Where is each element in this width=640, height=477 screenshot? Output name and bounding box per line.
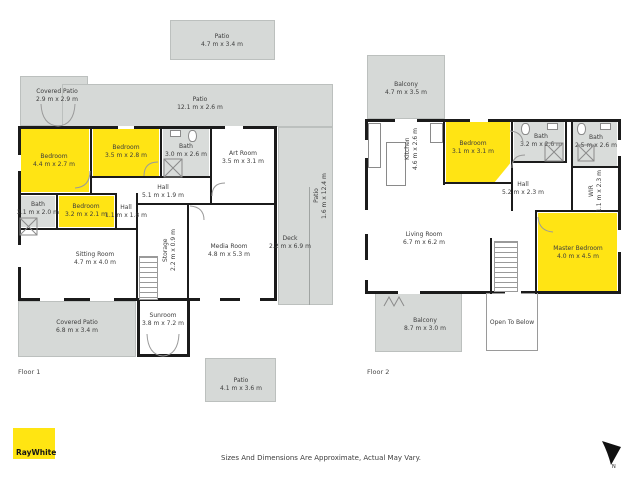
room-name: Patio <box>313 173 321 219</box>
room-label-bedroom3: Bedroom 3.2 m x 2.1 m <box>65 203 107 219</box>
room-name: Covered Patio <box>56 319 98 327</box>
wall-segment <box>511 161 567 163</box>
room-dims: 2.1 m x 2.0 m <box>17 209 59 217</box>
kitchen-island <box>386 142 406 186</box>
window-opening <box>18 245 21 267</box>
raywhite-logo: RayWhite <box>13 428 55 459</box>
room-name: Hall <box>142 184 184 192</box>
window-opening <box>365 260 368 280</box>
window-opening <box>398 291 420 294</box>
room-name: Bedroom <box>105 144 147 152</box>
room-label-bedroom-f2: Bedroom 3.1 m x 3.1 m <box>452 140 494 156</box>
room-dims: 1.6 m x 12.4 m <box>321 173 329 219</box>
room-label-living-room: Living Room 6.7 m x 6.2 m <box>403 231 445 247</box>
room-label-hall-f2: Hall 5.2 m x 2.3 m <box>502 181 544 197</box>
room-dims: 12.1 m x 2.6 m <box>177 104 223 112</box>
window-opening <box>18 155 21 171</box>
room-dims: 6.7 m x 6.2 m <box>403 239 445 247</box>
room-label-patio-top: Patio 4.7 m x 3.4 m <box>201 33 243 49</box>
room-dims: 2.5 m x 2.6 m <box>575 142 617 150</box>
wall-segment <box>136 203 276 205</box>
room-label-wir: WIR 1.1 m x 2.3 m <box>588 170 604 212</box>
window-opening <box>365 210 368 234</box>
room-name: Balcony <box>404 317 446 325</box>
floor1-label: Floor 1 <box>18 368 40 376</box>
room-label-balcony-bottom: Balcony 8.7 m x 3.0 m <box>404 317 446 333</box>
room-dims: 4.8 m x 5.3 m <box>208 251 250 259</box>
room-label-sitting-room: Sitting Room 4.7 m x 4.0 m <box>74 251 116 267</box>
room-dims: 3.0 m x 2.6 m <box>165 151 207 159</box>
room-name: Kitchen <box>404 128 412 170</box>
wall-segment <box>511 119 513 211</box>
room-label-patio-long: Patio 12.1 m x 2.6 m <box>177 96 223 112</box>
window-opening <box>395 119 417 122</box>
room-label-bath2: Bath 2.1 m x 2.0 m <box>17 201 59 217</box>
room-dims: 3.8 m x 7.2 m <box>142 320 184 328</box>
window-opening <box>240 298 260 301</box>
room-dims: 4.6 m x 2.6 m <box>412 128 420 170</box>
room-dims: 2.2 m x 6.9 m <box>269 243 311 251</box>
room-dims: 2.9 m x 2.9 m <box>36 96 78 104</box>
kitchen-appliance <box>430 123 443 143</box>
compass-north-label: N <box>612 464 616 470</box>
wall-segment <box>490 238 492 294</box>
room-dims: 4.7 m x 4.0 m <box>74 259 116 267</box>
room-name: Deck <box>269 235 311 243</box>
sink-fixture <box>170 130 181 137</box>
room-name: Media Room <box>208 243 250 251</box>
window-opening <box>618 140 621 156</box>
room-dims: 3.2 m x 2.6 m <box>520 141 562 149</box>
compass-arrow-icon <box>602 441 621 465</box>
wall-segment <box>187 203 189 301</box>
sink-fixture <box>547 123 558 130</box>
window-opening <box>90 298 114 301</box>
room-name: Bedroom <box>452 140 494 148</box>
room-name: Sitting Room <box>74 251 116 259</box>
wall-segment <box>90 126 92 195</box>
floorplan-canvas: Patio 4.7 m x 3.4 m Covered Patio 2.9 m … <box>0 0 640 477</box>
room-dims: 4.4 m x 2.7 m <box>33 161 75 169</box>
room-dims: 3.2 m x 2.1 m <box>65 211 107 219</box>
window-opening <box>618 230 621 252</box>
room-name: Storage <box>162 229 170 271</box>
room-dims: 5.1 m x 1.9 m <box>142 192 184 200</box>
room-name: Bedroom <box>33 153 75 161</box>
room-label-covered-patio-bottom: Covered Patio 6.8 m x 3.4 m <box>56 319 98 335</box>
room-label-balcony-top: Balcony 4.7 m x 3.5 m <box>385 81 427 97</box>
room-dims: 3.1 m x 3.1 m <box>452 148 494 156</box>
raywhite-logo-text: RayWhite <box>16 448 56 457</box>
room-name: Patio <box>220 377 262 385</box>
wall-segment <box>535 210 537 294</box>
room-name: Open To Below <box>490 319 534 327</box>
room-label-bath1: Bath 3.0 m x 2.6 m <box>165 143 207 159</box>
room-label-sunroom: Sunroom 3.8 m x 7.2 m <box>142 312 184 328</box>
disclaimer-text: Sizes And Dimensions Are Approximate, Ac… <box>221 454 421 462</box>
room-dims: 3.5 m x 3.1 m <box>222 158 264 166</box>
wall-segment <box>91 176 211 178</box>
wall-segment <box>565 119 567 163</box>
room-name: Bath <box>575 134 617 142</box>
room-dims: 1.1 m x 2.3 m <box>596 170 604 212</box>
kitchen-counter <box>368 123 381 168</box>
room-dims: 4.7 m x 3.5 m <box>385 89 427 97</box>
sink-fixture <box>600 123 611 130</box>
room-label-bedroom1: Bedroom 4.4 m x 2.7 m <box>33 153 75 169</box>
room-label-deck: Deck 2.2 m x 6.9 m <box>269 235 311 251</box>
wall-segment <box>18 193 117 195</box>
room-name: Bath <box>165 143 207 151</box>
wall-segment <box>443 182 511 184</box>
staircase-floor1 <box>139 256 158 300</box>
room-name: Living Room <box>403 231 445 239</box>
wall-segment <box>160 126 162 178</box>
room-label-hall-f1: Hall 5.1 m x 1.9 m <box>142 184 184 200</box>
room-dims: 2.2 m x 0.9 m <box>170 229 178 271</box>
room-name: Hall <box>502 181 544 189</box>
room-label-covered-patio-top: Covered Patio 2.9 m x 2.9 m <box>36 88 78 104</box>
window-opening <box>470 119 488 122</box>
window-opening <box>118 126 134 129</box>
room-label-bath2-f2: Bath 2.5 m x 2.6 m <box>575 134 617 150</box>
room-name: Patio <box>201 33 243 41</box>
room-name: WIR <box>588 170 596 212</box>
room-label-master-bedroom: Master Bedroom 4.0 m x 4.5 m <box>553 245 603 261</box>
room-dims: 3.5 m x 2.8 m <box>105 152 147 160</box>
room-name: Art Room <box>222 150 264 158</box>
room-label-patio-bottom: Patio 4.1 m x 3.6 m <box>220 377 262 393</box>
room-label-art-room: Art Room 3.5 m x 3.1 m <box>222 150 264 166</box>
toilet-fixture <box>577 123 586 135</box>
window-opening <box>40 298 64 301</box>
room-name: Bath <box>17 201 59 209</box>
room-name: Covered Patio <box>36 88 78 96</box>
wall-segment <box>443 119 445 185</box>
toilet-fixture <box>188 130 197 142</box>
room-name: Bedroom <box>65 203 107 211</box>
room-dims: 6.8 m x 3.4 m <box>56 327 98 335</box>
room-dims: 4.1 m x 3.6 m <box>220 385 262 393</box>
floor2-label: Floor 2 <box>367 368 389 376</box>
room-label-open-to-below: Open To Below <box>490 319 534 327</box>
room-label-storage: Storage 2.2 m x 0.9 m <box>162 229 178 271</box>
room-name: Sunroom <box>142 312 184 320</box>
wall-segment <box>571 119 573 211</box>
wall-segment <box>571 166 620 168</box>
room-label-patio-side: Patio 1.6 m x 12.4 m <box>313 173 329 219</box>
room-label-bath1-f2: Bath 3.2 m x 2.6 m <box>520 133 562 149</box>
room-name: Patio <box>177 96 223 104</box>
window-opening <box>225 126 243 129</box>
room-dims: 4.7 m x 3.4 m <box>201 41 243 49</box>
wall-segment <box>535 210 620 212</box>
wall-segment <box>18 228 138 230</box>
room-dims: 4.0 m x 4.5 m <box>553 253 603 261</box>
room-name: Balcony <box>385 81 427 89</box>
room-label-hall2-f1: Hall 1.1 m x 1.8 m <box>105 204 147 220</box>
window-opening <box>200 298 220 301</box>
room-label-media-room: Media Room 4.8 m x 5.3 m <box>208 243 250 259</box>
wall-segment <box>210 126 212 204</box>
room-dims: 8.7 m x 3.0 m <box>404 325 446 333</box>
room-dims: 5.2 m x 2.3 m <box>502 189 544 197</box>
room-name: Bath <box>520 133 562 141</box>
room-name: Hall <box>105 204 147 212</box>
room-label-bedroom2: Bedroom 3.5 m x 2.8 m <box>105 144 147 160</box>
room-name: Master Bedroom <box>553 245 603 253</box>
room-dims: 1.1 m x 1.8 m <box>105 212 147 220</box>
staircase-floor2 <box>494 241 518 292</box>
room-label-kitchen: Kitchen 4.6 m x 2.6 m <box>404 128 420 170</box>
